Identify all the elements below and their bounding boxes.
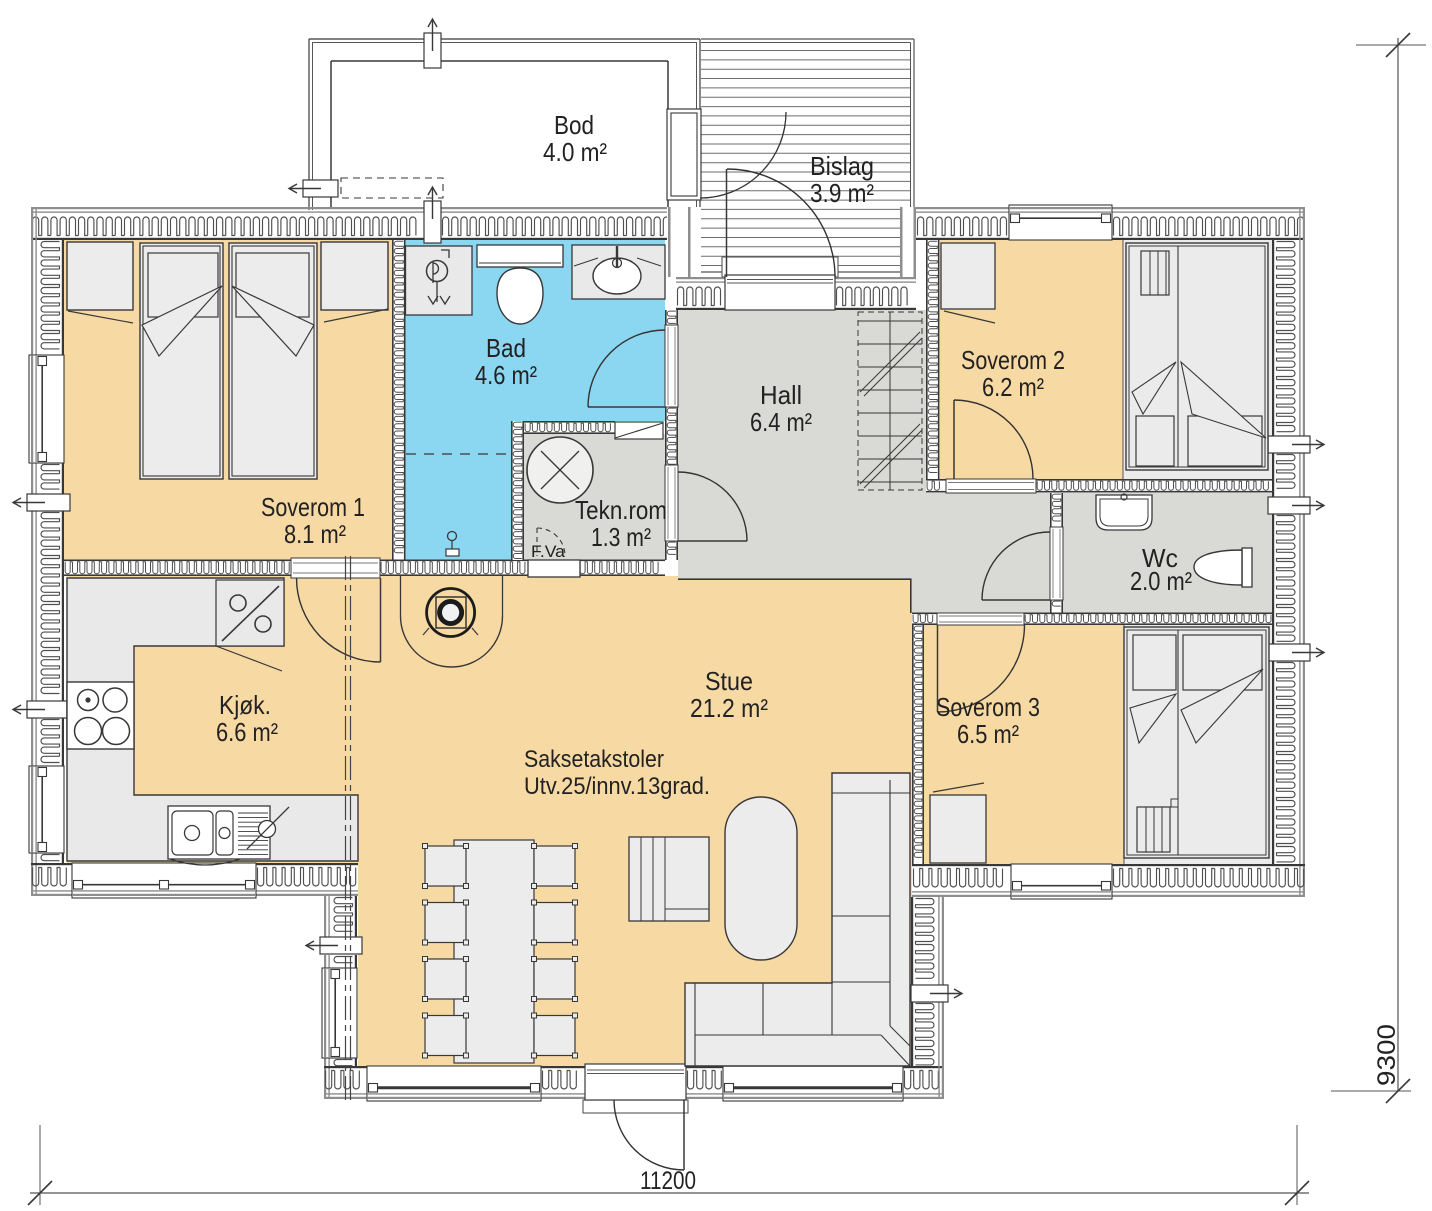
svg-text:Utv.25/innv.13grad.: Utv.25/innv.13grad. bbox=[524, 773, 710, 800]
svg-text:Stue: Stue bbox=[705, 666, 753, 696]
svg-text:F.Va: F.Va bbox=[531, 542, 566, 561]
svg-text:21.2 m²: 21.2 m² bbox=[690, 693, 768, 723]
svg-text:11200: 11200 bbox=[640, 1167, 696, 1195]
svg-text:Soverom 1: Soverom 1 bbox=[261, 492, 365, 522]
svg-text:Bod: Bod bbox=[554, 110, 594, 140]
svg-text:6.5 m²: 6.5 m² bbox=[957, 719, 1019, 749]
svg-text:6.6 m²: 6.6 m² bbox=[216, 717, 278, 747]
svg-text:Tekn.rom: Tekn.rom bbox=[575, 495, 667, 525]
svg-text:1.3 m²: 1.3 m² bbox=[591, 522, 651, 552]
svg-text:Hall: Hall bbox=[760, 380, 802, 410]
svg-text:6.2 m²: 6.2 m² bbox=[982, 372, 1044, 402]
svg-text:Saksetakstoler: Saksetakstoler bbox=[524, 746, 664, 773]
svg-text:3.9 m²: 3.9 m² bbox=[810, 178, 874, 208]
svg-text:4.0 m²: 4.0 m² bbox=[543, 137, 607, 167]
svg-text:Soverom 2: Soverom 2 bbox=[961, 345, 1065, 375]
svg-text:Bad: Bad bbox=[486, 333, 526, 363]
svg-text:2.0 m²: 2.0 m² bbox=[1130, 566, 1192, 596]
svg-text:Soverom 3: Soverom 3 bbox=[936, 692, 1040, 722]
svg-text:8.1 m²: 8.1 m² bbox=[284, 519, 346, 549]
svg-text:6.4 m²: 6.4 m² bbox=[750, 407, 812, 437]
svg-text:Kjøk.: Kjøk. bbox=[219, 690, 271, 720]
svg-text:4.6 m²: 4.6 m² bbox=[475, 360, 537, 390]
svg-text:Bislag: Bislag bbox=[810, 151, 874, 181]
svg-text:9300: 9300 bbox=[1373, 1024, 1401, 1086]
